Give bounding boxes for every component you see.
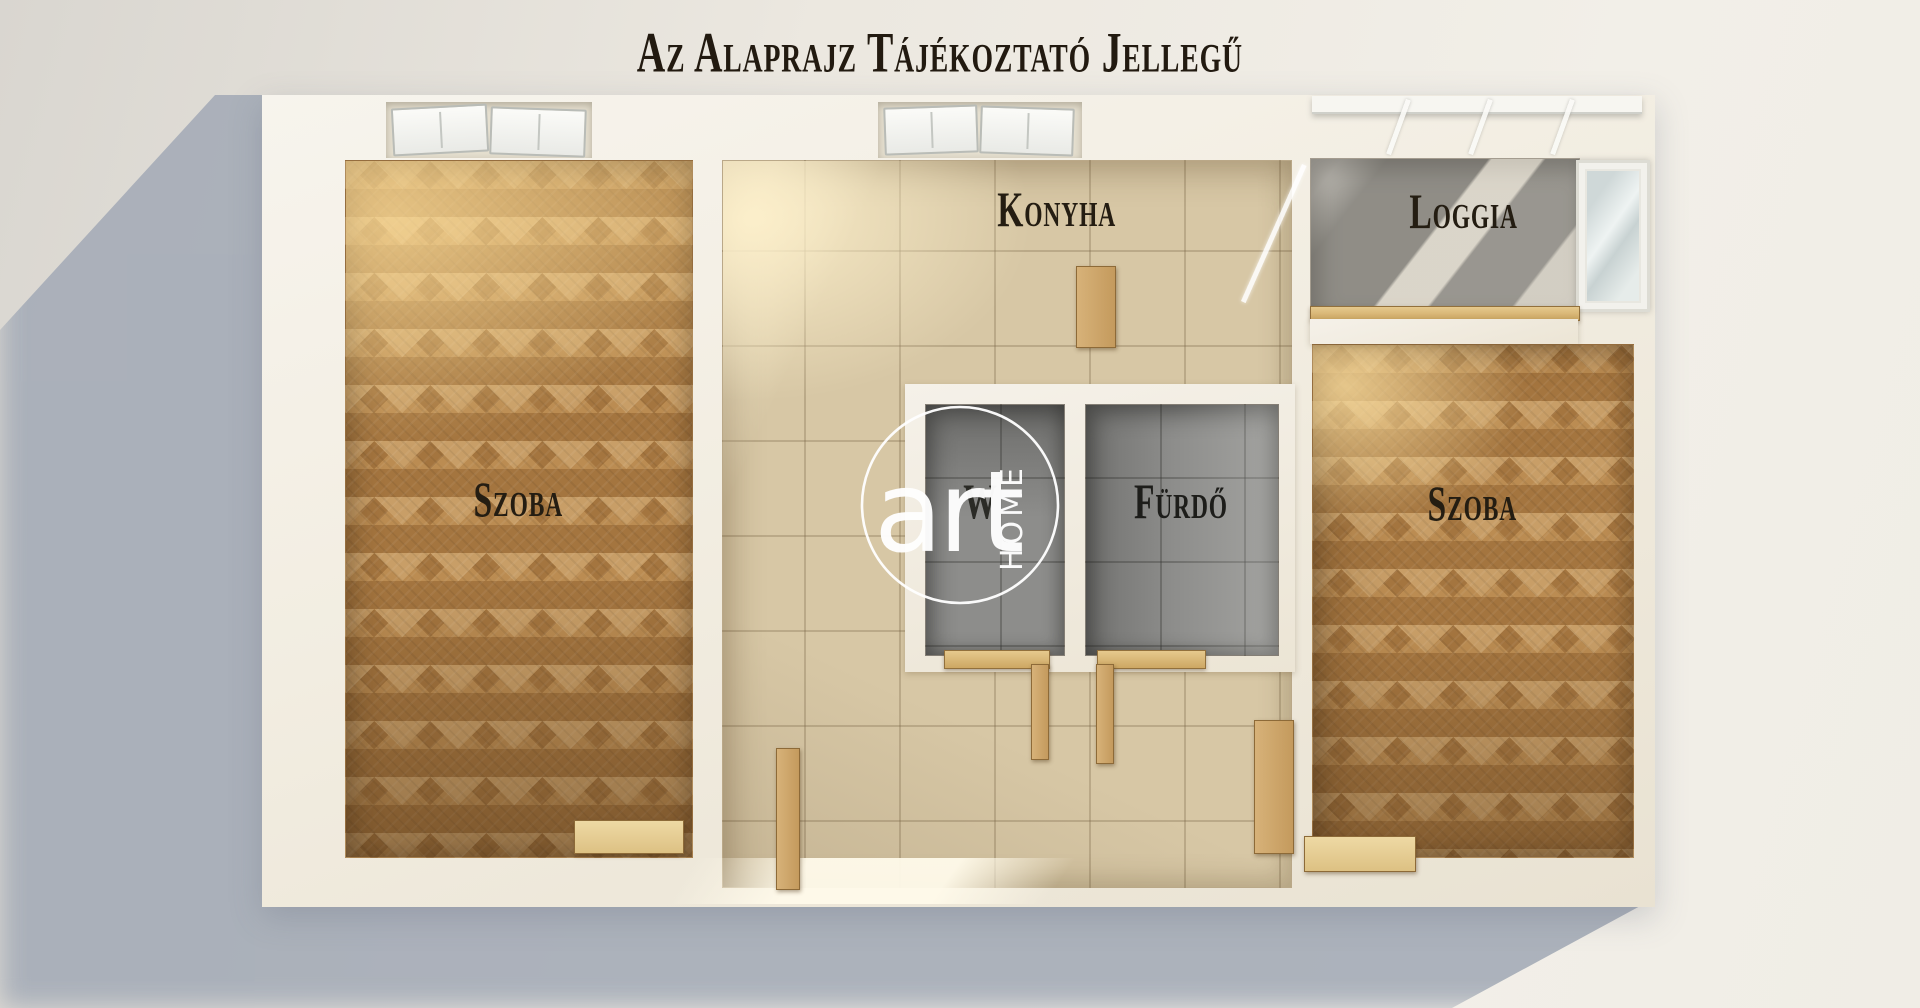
loggia-floor (1310, 158, 1580, 310)
window-sash-kitchen-2 (979, 105, 1075, 156)
loggia-door-leaf-in-kitchen (1076, 266, 1116, 348)
window-sash-left-1 (391, 104, 489, 157)
room-right-hall-door-open (1254, 720, 1294, 854)
wc-floor (925, 404, 1065, 656)
loggia-railing (1312, 96, 1642, 114)
room-right-door-leaf (1304, 836, 1416, 872)
loggia-window-glass (1585, 169, 1641, 303)
loggia-window (1576, 160, 1650, 312)
window-sash-kitchen-1 (883, 104, 979, 155)
loggia-parapet-wall (1310, 319, 1578, 344)
bathroom-floor (1085, 404, 1279, 656)
disclaimer-title: Az alaprajz tájékoztató jellegű (520, 26, 1360, 80)
room-left-door-open (574, 820, 684, 854)
window-sash-left-2 (489, 106, 587, 157)
floorplan-render: Az alaprajz tájékoztató jellegű Szoba Ko… (0, 0, 1920, 1008)
bathroom-door-open (1096, 664, 1114, 764)
room-right-floor (1312, 344, 1634, 858)
wc-door-open (1031, 664, 1049, 760)
disclaimer-title-text: Az alaprajz tájékoztató jellegű (637, 20, 1243, 86)
entry-door-open (776, 748, 800, 890)
room-left-floor (345, 160, 693, 858)
